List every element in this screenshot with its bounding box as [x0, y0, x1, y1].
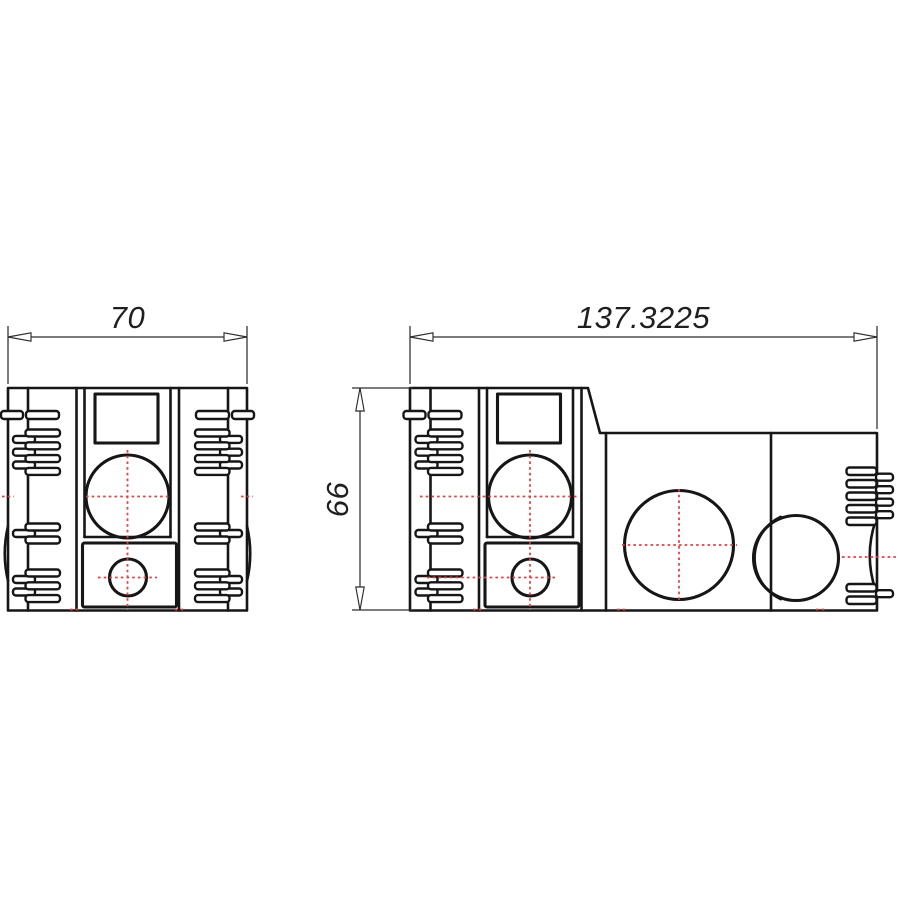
technical-drawing: 70 137.3225 66 — [0, 0, 900, 900]
fin-slot — [26, 524, 61, 531]
dim-height-label: 66 — [320, 482, 355, 518]
arrowhead — [224, 333, 247, 341]
fin-slot — [428, 595, 463, 602]
fin-slot — [847, 597, 877, 605]
fin-slot — [428, 524, 463, 531]
dim-height: 66 — [320, 388, 413, 610]
fin-slot — [26, 411, 59, 419]
fin-slot — [428, 570, 463, 577]
front-right-rail-fins — [195, 411, 254, 602]
fin-tab — [876, 486, 893, 493]
fin-slot — [26, 582, 61, 589]
arrowhead — [8, 333, 31, 341]
fin-slot — [26, 537, 61, 544]
front-panel-features — [83, 394, 177, 607]
fin-tab — [876, 499, 893, 506]
fin-slot — [195, 468, 230, 475]
dim-side-width-label: 137.3225 — [577, 300, 711, 335]
fin-slot — [428, 582, 463, 589]
fin-tab — [876, 474, 893, 481]
fin-slot — [195, 455, 230, 462]
fin-slot — [428, 468, 463, 475]
front-left-rail-fins — [1, 411, 60, 602]
fin-slot — [195, 442, 230, 449]
fin-slot — [195, 537, 230, 544]
arrowhead — [356, 388, 364, 411]
dim-front-width: 70 — [8, 300, 247, 384]
top-notch — [95, 394, 158, 443]
fin-slot — [195, 582, 230, 589]
side-cylinder-edge-arc — [755, 517, 781, 599]
fin-slot — [404, 411, 426, 419]
rear-cylinder-bulge — [870, 521, 876, 590]
side-view — [404, 388, 898, 611]
fin-slot — [428, 430, 463, 437]
fin-slot — [1, 411, 23, 419]
fin-slot — [847, 584, 877, 592]
fin-slot — [26, 595, 61, 602]
fin-slot — [195, 430, 230, 437]
fin-slot — [847, 505, 877, 513]
fin-slot — [428, 442, 463, 449]
fin-slot — [232, 411, 254, 419]
fin-slot — [26, 442, 61, 449]
fin-slot — [26, 468, 61, 475]
arrowhead — [410, 333, 433, 341]
arrowhead — [356, 587, 364, 610]
side-rear-fins — [847, 468, 894, 605]
top-notch — [498, 394, 561, 443]
fin-slot — [195, 595, 230, 602]
fin-slot — [26, 570, 61, 577]
arrowhead — [854, 333, 877, 341]
front-view — [1, 388, 254, 611]
side-left-rail-fins — [404, 411, 463, 602]
fin-slot — [195, 570, 230, 577]
fin-slot — [428, 537, 463, 544]
fin-slot — [847, 518, 877, 526]
fin-tab — [876, 511, 893, 518]
side-panel-features — [485, 394, 839, 607]
fin-slot — [26, 430, 61, 437]
fin-slot — [847, 493, 877, 501]
fin-slot — [26, 455, 61, 462]
fin-slot — [429, 411, 462, 419]
fin-slot — [847, 468, 877, 476]
dim-front-width-label: 70 — [110, 300, 145, 335]
fin-slot — [847, 480, 877, 488]
side-centerlines — [420, 450, 897, 610]
fin-slot — [196, 411, 229, 419]
drawing-canvas: 70 137.3225 66 — [0, 0, 900, 900]
fin-slot — [428, 455, 463, 462]
fin-tab — [876, 590, 893, 597]
fin-slot — [195, 524, 230, 531]
